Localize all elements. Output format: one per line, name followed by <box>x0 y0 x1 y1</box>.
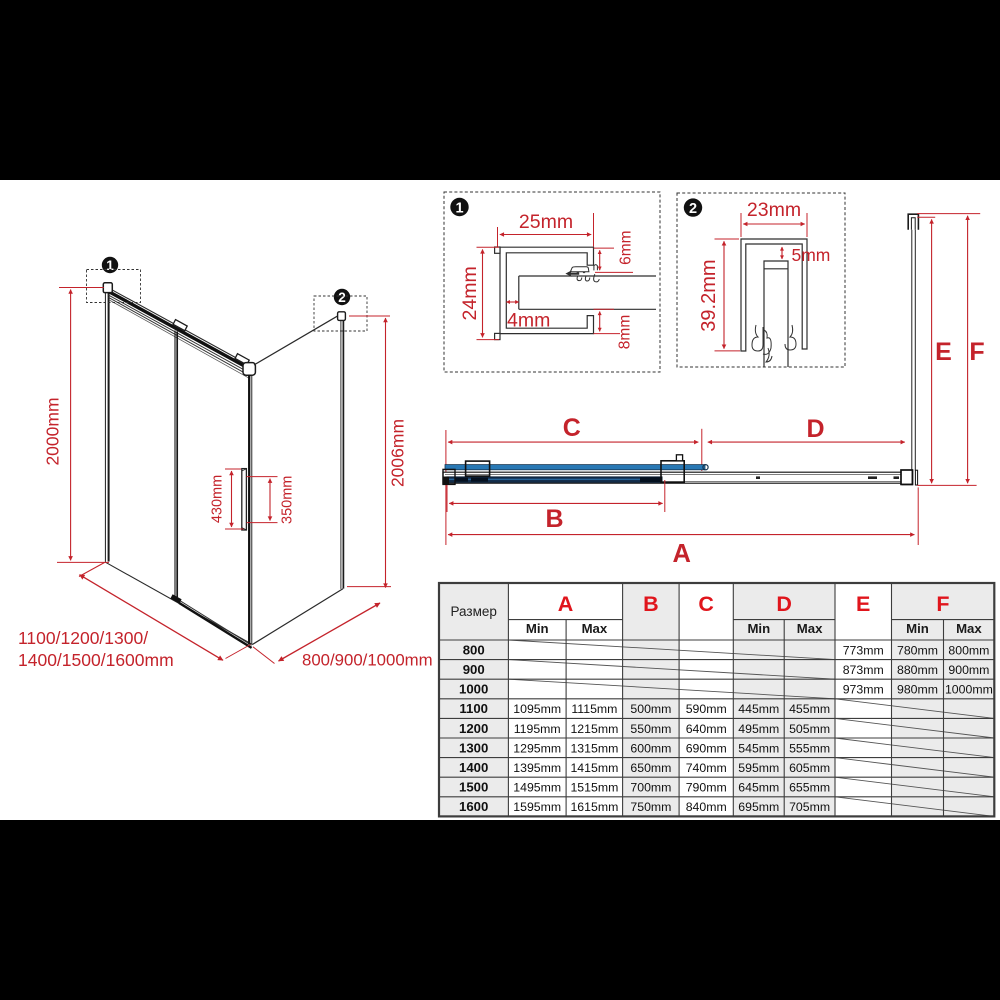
svg-text:790mm: 790mm <box>686 781 727 795</box>
svg-text:Max: Max <box>797 621 823 636</box>
svg-text:1000mm: 1000mm <box>945 683 993 697</box>
svg-text:750mm: 750mm <box>630 800 671 814</box>
svg-text:1400: 1400 <box>459 760 488 775</box>
svg-text:1415mm: 1415mm <box>570 761 618 775</box>
svg-text:1615mm: 1615mm <box>570 800 618 814</box>
svg-text:1195mm: 1195mm <box>514 722 561 736</box>
svg-text:Размер: Размер <box>450 604 496 619</box>
svg-text:650mm: 650mm <box>630 761 671 775</box>
svg-text:1115mm: 1115mm <box>571 702 617 716</box>
svg-text:800mm: 800mm <box>948 643 989 657</box>
svg-text:1100/1200/1300/: 1100/1200/1300/ <box>18 628 148 648</box>
svg-text:Min: Min <box>747 621 770 636</box>
svg-text:2006mm: 2006mm <box>388 419 408 487</box>
svg-text:555mm: 555mm <box>789 741 830 755</box>
svg-text:455mm: 455mm <box>789 702 830 716</box>
svg-text:695mm: 695mm <box>738 800 779 814</box>
svg-text:1: 1 <box>106 258 114 273</box>
svg-text:350mm: 350mm <box>280 476 296 524</box>
svg-text:39.2mm: 39.2mm <box>698 259 720 331</box>
svg-text:1500: 1500 <box>459 780 488 795</box>
svg-text:840mm: 840mm <box>686 800 727 814</box>
svg-text:1: 1 <box>455 200 463 216</box>
svg-text:590mm: 590mm <box>686 702 727 716</box>
svg-text:980mm: 980mm <box>897 683 938 697</box>
svg-text:500mm: 500mm <box>630 702 671 716</box>
svg-text:900: 900 <box>463 662 485 677</box>
svg-text:C: C <box>698 592 714 616</box>
svg-text:8mm: 8mm <box>617 315 634 349</box>
svg-text:F: F <box>969 338 984 366</box>
svg-text:E: E <box>856 592 870 616</box>
svg-text:873mm: 873mm <box>843 663 884 677</box>
svg-text:2000mm: 2000mm <box>43 397 63 465</box>
svg-text:705mm: 705mm <box>789 800 830 814</box>
svg-text:1000: 1000 <box>459 682 488 697</box>
svg-text:Min: Min <box>526 621 549 636</box>
svg-text:B: B <box>643 592 659 616</box>
svg-text:595mm: 595mm <box>738 761 779 775</box>
svg-text:800: 800 <box>463 642 485 657</box>
svg-text:600mm: 600mm <box>630 741 671 755</box>
svg-text:23mm: 23mm <box>747 199 801 221</box>
svg-text:D: D <box>806 415 824 443</box>
svg-text:1295mm: 1295mm <box>513 741 561 755</box>
svg-text:445mm: 445mm <box>738 702 779 716</box>
svg-text:C: C <box>563 414 581 442</box>
svg-text:1515mm: 1515mm <box>570 781 618 795</box>
svg-text:1495mm: 1495mm <box>513 781 561 795</box>
svg-text:D: D <box>776 592 792 616</box>
svg-text:1315mm: 1315mm <box>570 741 618 755</box>
svg-text:4mm: 4mm <box>507 310 550 332</box>
svg-text:690mm: 690mm <box>686 741 727 755</box>
svg-text:880mm: 880mm <box>897 663 938 677</box>
svg-text:1400/1500/1600mm: 1400/1500/1600mm <box>18 650 174 670</box>
svg-text:605mm: 605mm <box>789 761 830 775</box>
svg-text:Min: Min <box>906 621 929 636</box>
svg-text:E: E <box>935 338 952 366</box>
svg-text:F: F <box>936 592 949 616</box>
svg-text:700mm: 700mm <box>630 781 671 795</box>
svg-text:1600: 1600 <box>459 799 488 814</box>
svg-text:1395mm: 1395mm <box>513 761 561 775</box>
svg-text:545mm: 545mm <box>738 741 779 755</box>
svg-text:900mm: 900mm <box>948 663 989 677</box>
svg-text:1300: 1300 <box>459 740 488 755</box>
svg-text:973mm: 973mm <box>843 683 884 697</box>
svg-text:1215mm: 1215mm <box>570 722 618 736</box>
svg-text:550mm: 550mm <box>630 722 671 736</box>
svg-text:655mm: 655mm <box>789 781 830 795</box>
svg-text:1100: 1100 <box>459 701 488 716</box>
svg-text:1200: 1200 <box>459 721 488 736</box>
svg-text:Max: Max <box>582 621 608 636</box>
svg-text:505mm: 505mm <box>789 722 830 736</box>
svg-text:25mm: 25mm <box>519 211 573 233</box>
svg-text:Max: Max <box>956 621 982 636</box>
svg-text:780mm: 780mm <box>897 643 938 657</box>
svg-text:6mm: 6mm <box>618 230 635 264</box>
svg-text:800/900/1000mm: 800/900/1000mm <box>302 650 433 669</box>
svg-text:2: 2 <box>338 290 346 305</box>
svg-text:640mm: 640mm <box>686 722 727 736</box>
svg-text:2: 2 <box>689 201 697 217</box>
svg-text:645mm: 645mm <box>738 781 779 795</box>
svg-text:24mm: 24mm <box>459 266 481 320</box>
svg-text:740mm: 740mm <box>686 761 727 775</box>
svg-text:430mm: 430mm <box>210 475 226 523</box>
svg-text:A: A <box>558 592 574 616</box>
svg-text:1595mm: 1595mm <box>513 800 561 814</box>
svg-text:773mm: 773mm <box>843 643 884 657</box>
svg-text:B: B <box>545 505 563 533</box>
svg-text:5mm: 5mm <box>792 245 831 265</box>
svg-text:495mm: 495mm <box>738 722 779 736</box>
svg-text:A: A <box>672 540 690 568</box>
svg-text:1095mm: 1095mm <box>513 702 561 716</box>
